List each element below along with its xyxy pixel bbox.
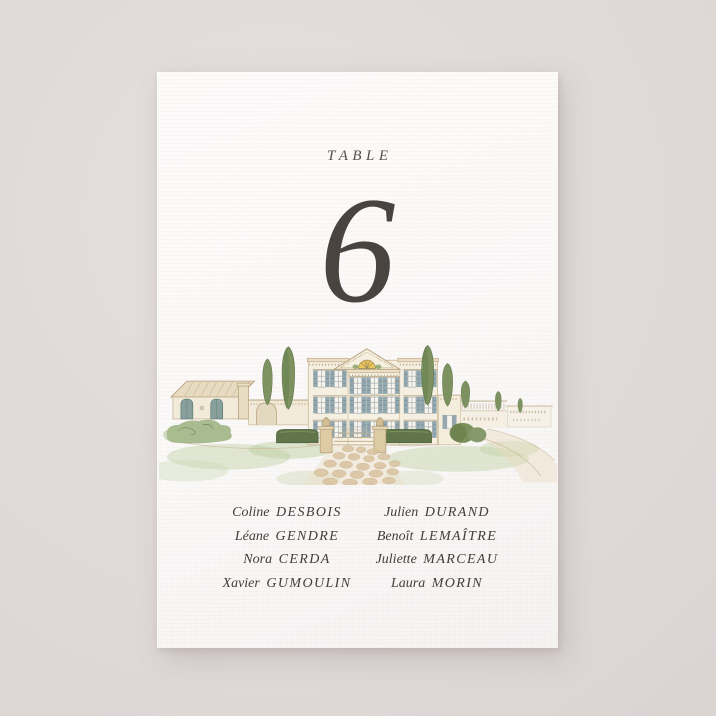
guest-list: Coline DESBOIS Léane GENDRE Nora CERDA X… [157, 501, 558, 611]
table-plan-card: TABLE 6 [157, 72, 558, 648]
guest-column-right: Julien DURAND Benoît LEMAÎTRE Juliette M… [362, 501, 512, 595]
guest-name: Juliette MARCEAU [362, 548, 512, 572]
tabletop-background: TABLE 6 [0, 0, 716, 716]
guest-name: Benoît LEMAÎTRE [362, 525, 512, 549]
guest-name: Julien DURAND [362, 501, 512, 525]
guest-name: Léane GENDRE [212, 525, 362, 549]
guest-name: Xavier GUMOULIN [212, 572, 362, 596]
guest-name: Laura MORIN [362, 572, 512, 596]
guest-column-left: Coline DESBOIS Léane GENDRE Nora CERDA X… [212, 501, 362, 595]
table-number: 6 [157, 174, 558, 326]
watercolor-chateau-drawing [159, 333, 557, 485]
chateau-illustration [159, 333, 557, 485]
guest-name: Nora CERDA [212, 548, 362, 572]
table-label: TABLE [157, 148, 558, 165]
guest-name: Coline DESBOIS [212, 501, 362, 525]
